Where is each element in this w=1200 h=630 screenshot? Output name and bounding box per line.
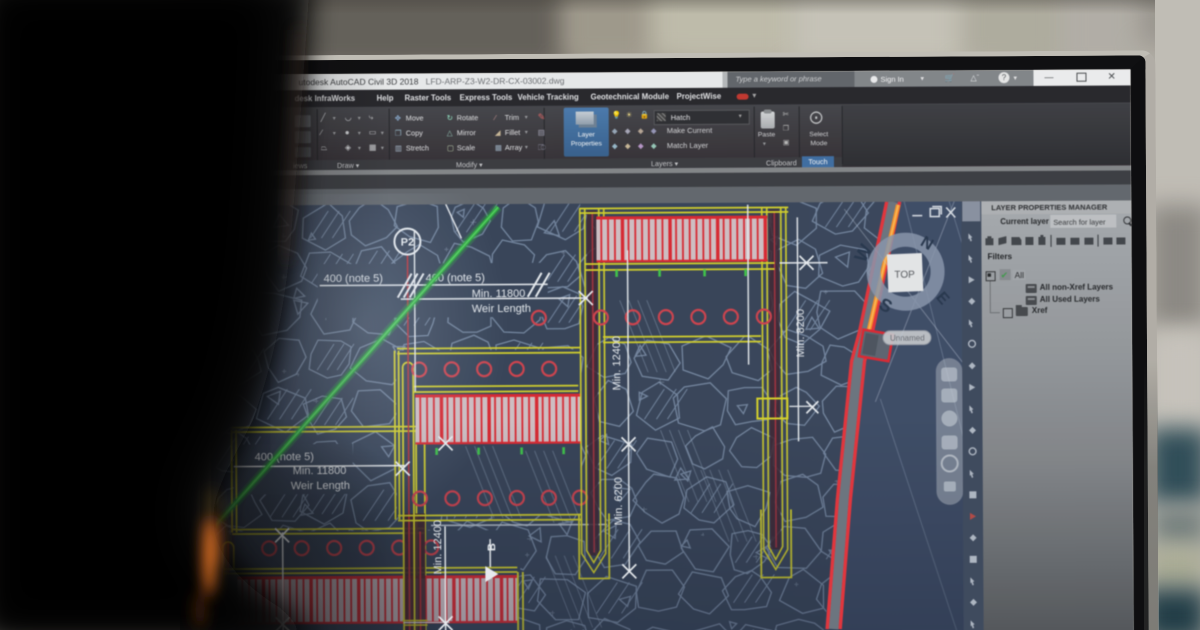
svg-text:C: C — [222, 499, 230, 511]
